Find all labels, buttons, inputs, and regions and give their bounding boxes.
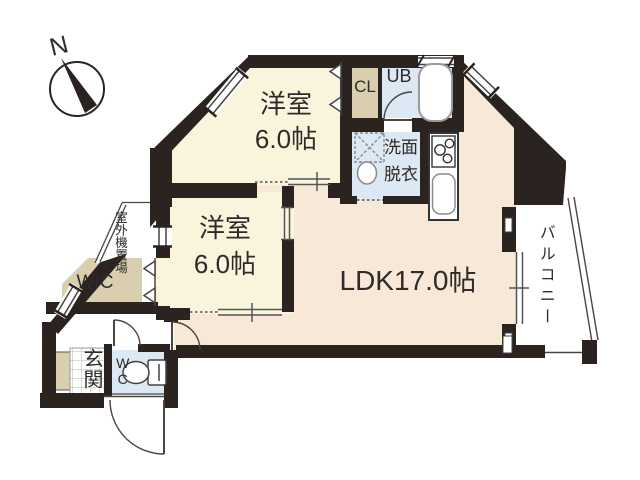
kitchen-sink-icon — [433, 174, 456, 214]
closet-label: CL — [354, 78, 376, 96]
outdoor-unit-label: 室外機置場 — [112, 211, 128, 263]
ldk-label: LDK17.0帖 — [340, 266, 477, 295]
door-wc — [114, 320, 140, 346]
balcony-post — [582, 340, 597, 364]
stove-icon — [432, 136, 455, 167]
bedroom2-size-label: 6.0帖 — [194, 251, 256, 278]
wic-label: WIC — [77, 273, 114, 293]
shoe-cabinet — [54, 352, 70, 390]
bathtub-icon — [419, 64, 452, 121]
floor-plan: N 洋室 6.0帖 洋室 6.0帖 LDK17.0帖 バルコニー 玄関 WIC … — [0, 0, 640, 480]
washroom-label: 洗面脱衣 — [384, 134, 424, 188]
wc-label: WC — [115, 355, 130, 387]
balcony-label: バルコニー — [536, 224, 553, 329]
entrance-label: 玄関 — [80, 348, 101, 390]
compass-icon — [50, 58, 104, 116]
door-entrance — [104, 397, 164, 455]
kitchen-counter — [429, 133, 458, 220]
wic-folding-door — [144, 258, 155, 306]
unit-bath-label: UB — [386, 67, 411, 86]
bedroom1-size-label: 6.0帖 — [255, 126, 317, 153]
window-bedroom2-west — [153, 226, 172, 247]
ldk-pillar-notch-south — [503, 336, 512, 353]
bedroom1-label: 洋室 — [260, 91, 312, 118]
washbasin-icon — [358, 162, 377, 184]
bedroom2-label: 洋室 — [199, 215, 251, 242]
ldk-pillar-notch-top — [505, 218, 512, 232]
